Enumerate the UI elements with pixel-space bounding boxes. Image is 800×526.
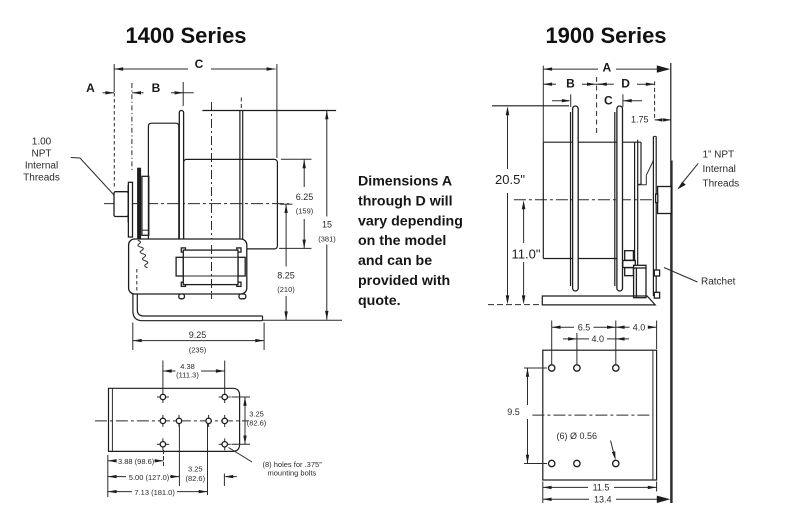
svg-text:and can be: and can be <box>358 253 432 269</box>
svg-text:1.00: 1.00 <box>32 137 52 148</box>
svg-text:8.25: 8.25 <box>277 271 295 281</box>
svg-text:(6) Ø 0.56: (6) Ø 0.56 <box>557 431 598 441</box>
svg-text:3.88 (98.6): 3.88 (98.6) <box>118 457 155 466</box>
svg-text:Threads: Threads <box>23 173 60 184</box>
svg-text:(82.6): (82.6) <box>186 474 206 483</box>
svg-text:(210): (210) <box>277 285 295 294</box>
svg-text:3.25: 3.25 <box>249 410 264 419</box>
svg-text:5.00 (127.0): 5.00 (127.0) <box>129 473 170 482</box>
svg-text:1.75: 1.75 <box>631 114 649 124</box>
svg-text:vary depending: vary depending <box>358 213 463 229</box>
svg-text:6.5: 6.5 <box>578 323 591 333</box>
svg-text:9.25: 9.25 <box>189 330 207 340</box>
svg-text:11.5: 11.5 <box>593 482 610 492</box>
svg-text:through D will: through D will <box>358 193 453 209</box>
svg-text:6.25: 6.25 <box>296 192 314 202</box>
svg-text:Internal: Internal <box>25 161 58 172</box>
svg-text:15: 15 <box>322 220 332 230</box>
svg-text:provided with: provided with <box>358 273 450 289</box>
svg-text:(82.6): (82.6) <box>247 419 267 428</box>
svg-text:Ratchet: Ratchet <box>701 277 736 288</box>
svg-text:on the model: on the model <box>358 233 446 249</box>
svg-text:1” NPT: 1” NPT <box>703 150 735 161</box>
svg-text:(159): (159) <box>296 207 314 216</box>
svg-text:mounting bolts: mounting bolts <box>268 469 317 478</box>
svg-text:4.0: 4.0 <box>592 334 605 344</box>
svg-text:4.0: 4.0 <box>633 323 646 333</box>
svg-text:Internal: Internal <box>703 164 736 175</box>
svg-text:A: A <box>602 61 611 75</box>
svg-text:NPT: NPT <box>32 149 52 160</box>
svg-text:C: C <box>195 57 204 71</box>
svg-text:D: D <box>621 77 630 91</box>
svg-text:B: B <box>566 77 575 91</box>
svg-text:(235): (235) <box>189 346 207 355</box>
svg-text:13.4: 13.4 <box>594 494 612 504</box>
svg-text:(111.3): (111.3) <box>176 371 199 380</box>
svg-text:B: B <box>152 81 161 95</box>
svg-text:1400 Series: 1400 Series <box>125 23 246 48</box>
svg-text:9.5: 9.5 <box>507 407 520 417</box>
svg-text:A: A <box>86 81 95 95</box>
svg-text:11.0": 11.0" <box>512 247 541 262</box>
svg-text:1900 Series: 1900 Series <box>545 23 666 48</box>
svg-text:(381): (381) <box>318 235 336 244</box>
svg-text:Threads: Threads <box>703 179 740 190</box>
svg-text:3.25: 3.25 <box>188 464 203 473</box>
svg-text:C: C <box>604 94 613 108</box>
svg-text:7.13 (181.0): 7.13 (181.0) <box>134 488 175 497</box>
svg-text:Dimensions A: Dimensions A <box>358 174 452 190</box>
svg-text:20.5": 20.5" <box>495 172 525 187</box>
svg-text:quote.: quote. <box>358 293 401 309</box>
